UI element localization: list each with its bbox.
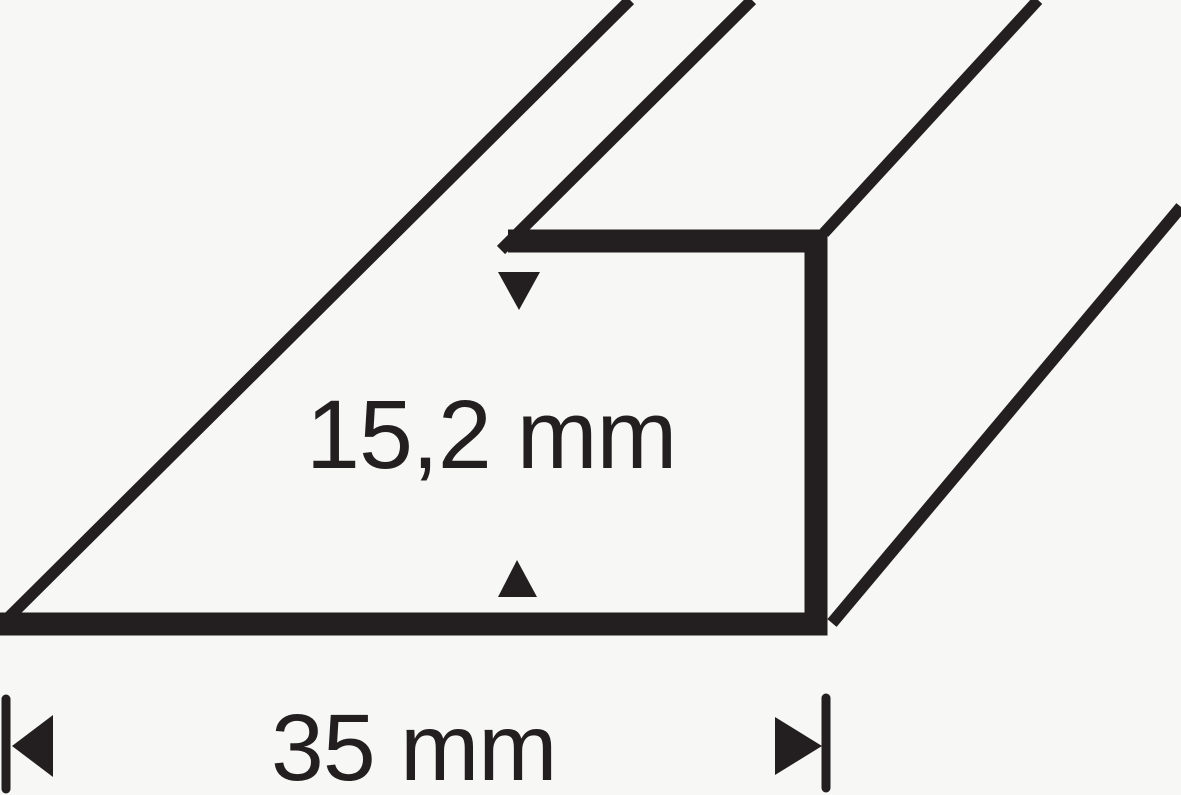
height-dimension-label: 15,2 mm [306,380,676,489]
height-arrow-up-icon [498,560,537,597]
width-arrow-left-icon [12,715,53,777]
extrusion-edge-bottom-right-corner [832,207,1181,623]
extrusion-edge-lip-end [501,0,752,250]
height-arrow-down-icon [498,272,540,310]
profile-drawing-canvas: 15,2 mm 35 mm [0,0,1181,795]
width-arrow-right-icon [775,717,822,775]
width-dimension: 35 mm [6,695,826,795]
width-dimension-label: 35 mm [271,695,556,795]
profile-diagram: 15,2 mm 35 mm [0,0,1181,795]
extrusion-edge-lip-right-corner [824,0,1038,233]
height-dimension: 15,2 mm [306,272,676,597]
extrusion-edge-bottom-left [4,0,630,622]
